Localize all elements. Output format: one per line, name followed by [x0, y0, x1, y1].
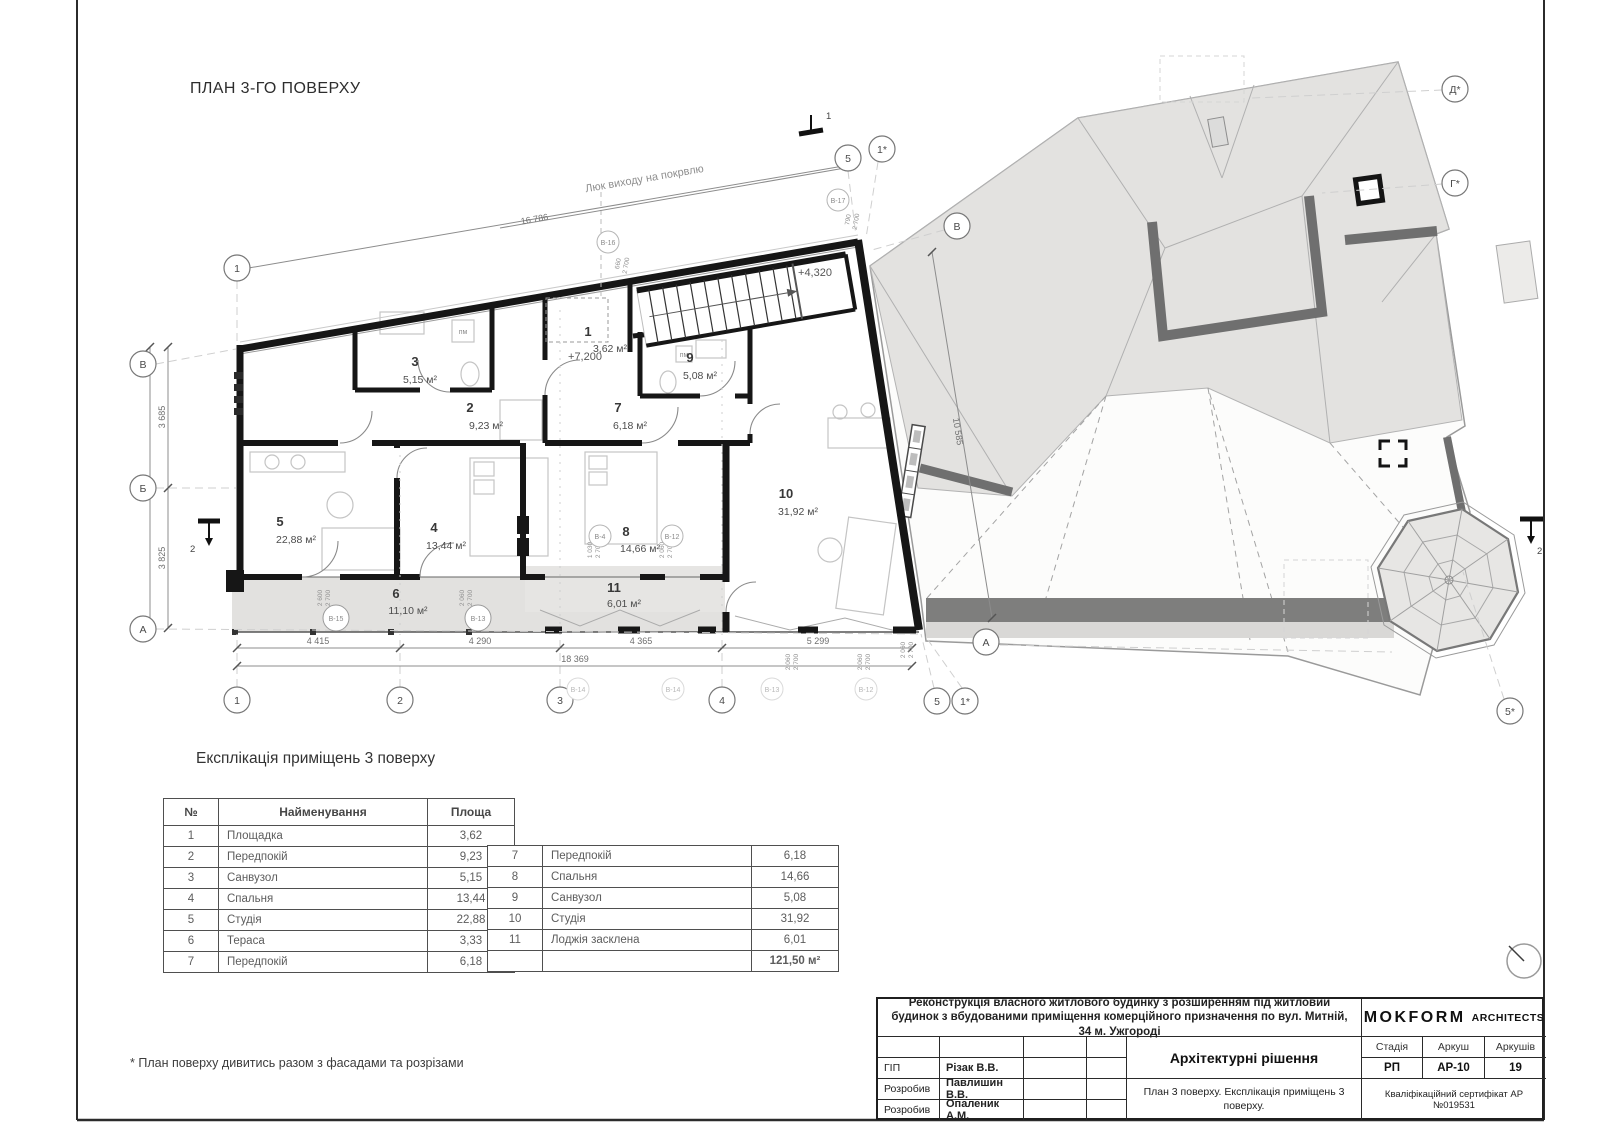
table-row: 7Передпокій6,18 [488, 846, 839, 867]
level-label: +7,200 [568, 351, 602, 363]
window-mark: В-16 [597, 231, 619, 253]
cell-number: 4 [164, 889, 219, 910]
window-mark-label: В-15 [329, 616, 344, 623]
axis-bubble: 1 [224, 255, 250, 281]
role-cell-empty [878, 1037, 940, 1058]
cell-total-area: 121,50 м² [752, 951, 839, 972]
dim-small: 2 060 [857, 653, 864, 670]
axis-bubble: 1 [224, 687, 250, 713]
room-area: 5,15 м² [403, 374, 438, 386]
table-row: 2Передпокій9,23 [164, 847, 515, 868]
sheets-label: Аркушів [1485, 1037, 1546, 1058]
cell-number: 11 [488, 930, 543, 951]
col-header-name: Найменування [219, 799, 428, 826]
window-mark: В-14 [662, 678, 684, 700]
room-number: 11 [607, 580, 621, 595]
north-indicator-icon [1507, 944, 1541, 978]
cell-area: 6,18 [752, 846, 839, 867]
axis-bubble: 5* [1497, 698, 1523, 724]
window-mark-label: В-13 [765, 687, 780, 694]
axis-bubble-label: 4 [719, 695, 725, 707]
cell-number: 7 [488, 846, 543, 867]
role-cell-empty [1087, 1079, 1127, 1100]
room-area: 22,88 м² [276, 534, 316, 546]
room-area: 9,23 м² [469, 420, 504, 432]
axis-bubble-label: 5 [845, 153, 851, 165]
window-mark-label: В-14 [666, 687, 681, 694]
roof-band-dark [926, 598, 1394, 622]
sheet-number: АР-10 [1423, 1058, 1485, 1079]
axis-bubble: 1* [952, 688, 978, 714]
shaft [517, 516, 529, 534]
role-cell-empty [1087, 1037, 1127, 1058]
dim-small: 2 700 [908, 641, 915, 658]
dim-label: 4 290 [469, 636, 492, 646]
drawing-sheet: пм пм [0, 0, 1600, 1131]
cell-name: Студія [543, 909, 752, 930]
title-block: Реконструкція власного житлового будинку… [876, 997, 1544, 1120]
window-mark-label: В-4 [595, 534, 606, 541]
wall-pier [226, 570, 244, 592]
table-row: 6Тераса3,33 [164, 931, 515, 952]
room-area: 14,66 м² [620, 543, 660, 555]
window-mark: В-12 [661, 525, 683, 547]
dim-small: 2 700 [622, 257, 632, 275]
window-mark: В-14 [567, 678, 589, 700]
table-row: 7Передпокій6,18 [164, 952, 515, 973]
role-label: Розробив [878, 1079, 940, 1100]
cell-number: 7 [164, 952, 219, 973]
axis-bubble-label: 5 [934, 696, 940, 708]
table-row: 8Спальня14,66 [488, 867, 839, 888]
cell-name: Студія [219, 910, 428, 931]
exploration-table-right: 7Передпокій6,18 8Спальня14,66 9Санвузол5… [487, 845, 839, 972]
doc-title: Архітектурні рішення [1127, 1037, 1362, 1079]
axis-bubble-label: 2 [397, 695, 403, 707]
axis-bubble-label: Д* [1449, 84, 1460, 96]
axis-bubble: А [973, 629, 999, 655]
table-row: 5Студія22,88 [164, 910, 515, 931]
cell-area: 5,08 [752, 888, 839, 909]
cell-name: Передпокій [543, 846, 752, 867]
window-mark: В-13 [465, 605, 491, 631]
role-name: Павлишин В.В. [940, 1079, 1024, 1100]
cell-name: Спальня [543, 867, 752, 888]
role-name: Різак В.В. [940, 1058, 1024, 1079]
certificate: Кваліфікаційний сертифікат АР №019531 [1362, 1079, 1546, 1120]
sheets-total: 19 [1485, 1058, 1546, 1079]
footnote: * План поверху дивитись разом з фасадами… [130, 1056, 464, 1070]
cell-empty [488, 951, 543, 972]
axis-bubble: В [944, 213, 970, 239]
axis-bubble-label: А [139, 624, 146, 636]
cell-area: 3,62 [428, 826, 515, 847]
page-title: ПЛАН 3-ГО ПОВЕРХУ [190, 80, 360, 98]
window-mark: В-12 [855, 678, 877, 700]
cell-number: 2 [164, 847, 219, 868]
brand-logo-suffix: ARCHITECTS [1472, 1012, 1545, 1024]
axis-bubble: Б [130, 475, 156, 501]
role-cell-empty [1087, 1058, 1127, 1079]
role-cell-empty [1024, 1058, 1087, 1079]
cell-area: 31,92 [752, 909, 839, 930]
room-area: 13,44 м² [426, 540, 466, 552]
axis-bubble-label: 1* [960, 696, 970, 708]
dim-label: 4 365 [630, 636, 653, 646]
window-mark-label: В-16 [601, 240, 616, 247]
dim-label: 5 299 [807, 636, 830, 646]
table-row: 4Спальня13,44 [164, 889, 515, 910]
room-area: 31,92 м² [778, 506, 818, 518]
room-number: 9 [686, 350, 693, 365]
axis-bubble-label: А [982, 637, 989, 649]
roof-hatch-note: Люк виходу на покрвлю [584, 163, 704, 195]
table-row: 1Площадка3,62 [164, 826, 515, 847]
section-label: 2 [1537, 546, 1542, 557]
role-name: Опаленик А.М. [940, 1100, 1024, 1120]
cell-number: 8 [488, 867, 543, 888]
cell-name: Площадка [219, 826, 428, 847]
axis-bubble: 4 [709, 687, 735, 713]
table-row: 3Санвузол5,15 [164, 868, 515, 889]
room-number: 10 [779, 486, 793, 501]
axis-bubble-label: 1* [877, 144, 887, 156]
cell-number: 1 [164, 826, 219, 847]
room-area: 6,18 м² [613, 420, 648, 432]
window-mark: В-15 [323, 605, 349, 631]
role-cell-empty [940, 1037, 1024, 1058]
apartment-plan: пм пм [226, 192, 919, 635]
room-area: 5,08 м² [683, 370, 718, 382]
room-area: 6,01 м² [607, 598, 642, 610]
window-mark: В-4 [589, 525, 611, 547]
window-mark-label: В-13 [471, 616, 486, 623]
shaft [517, 538, 529, 556]
exploration-heading: Експлікація приміщень 3 поверху [196, 750, 435, 768]
exploration-table-left: № Найменування Площа 1Площадка3,62 2Пере… [163, 798, 515, 973]
axis-bubble: 5 [924, 688, 950, 714]
dim-label: 4 415 [307, 636, 330, 646]
section-label: 2 [190, 544, 195, 555]
cell-name: Тераса [219, 931, 428, 952]
cell-name: Санвузол [219, 868, 428, 889]
room-number: 4 [430, 520, 438, 535]
section-label: 1 [826, 111, 831, 122]
washing-machine-label: пм [459, 329, 468, 336]
cell-name: Санвузол [543, 888, 752, 909]
axis-bubble-label: 1 [234, 695, 240, 707]
cell-empty [543, 951, 752, 972]
axis-bubble-label: 1 [234, 263, 240, 275]
roof-hatch-outline [546, 298, 608, 342]
axis-bubble-label: Б [140, 483, 147, 495]
room-number: 1 [584, 324, 591, 339]
role-cell-empty [1024, 1037, 1087, 1058]
col-header-area: Площа [428, 799, 515, 826]
stage-value: РП [1362, 1058, 1423, 1079]
axis-bubble: Г* [1442, 170, 1468, 196]
role-cell-empty [1024, 1079, 1087, 1100]
room-area: 11,10 м² [388, 605, 428, 617]
dim-small: 2 700 [793, 653, 800, 670]
axis-bubble-label: Г* [1450, 178, 1460, 190]
cell-name: Спальня [219, 889, 428, 910]
axis-bubble-label: В [953, 221, 960, 233]
axis-bubble: В [130, 351, 156, 377]
dim-small: 2 060 [785, 653, 792, 670]
dim-label: 18 369 [561, 654, 589, 664]
cell-number: 10 [488, 909, 543, 930]
sheet-label: Аркуш [1423, 1037, 1485, 1058]
project-description: Реконструкція власного житлового будинку… [878, 999, 1362, 1037]
dim-small: 2 060 [900, 641, 907, 658]
window-mark-label: В-12 [859, 687, 874, 694]
room-number: 8 [622, 524, 629, 539]
room-number: 3 [411, 354, 418, 369]
axis-bubble-label: В [139, 359, 146, 371]
stage-label: Стадія [1362, 1037, 1423, 1058]
axis-bubble: 1* [869, 136, 895, 162]
axis-bubble-label: 3 [557, 695, 563, 707]
dim-small: 2 700 [852, 213, 862, 231]
axis-bubble: 2 [387, 687, 413, 713]
window-mark: В-13 [761, 678, 783, 700]
level-label: +4,320 [798, 267, 832, 279]
dim-small: 2 700 [325, 589, 332, 606]
window-mark: В-17 [827, 189, 849, 211]
table-header-row: № Найменування Площа [164, 799, 515, 826]
room-number: 5 [276, 514, 283, 529]
axis-bubble: 5 [835, 145, 861, 171]
cell-name: Передпокій [219, 847, 428, 868]
window-mark-label: В-14 [571, 687, 586, 694]
table-total-row: 121,50 м² [488, 951, 839, 972]
window-mark-label: В-12 [665, 534, 680, 541]
dim-small: 2 060 [459, 589, 466, 606]
room-number: 2 [466, 400, 473, 415]
dim-label: 3 825 [157, 547, 167, 570]
cell-area: 6,01 [752, 930, 839, 951]
doc-subtitle: План 3 поверху. Експлікація приміщень 3 … [1127, 1079, 1362, 1120]
axis-bubble-label: 5* [1505, 706, 1515, 718]
brand: MOKFORM ARCHITECTS [1362, 999, 1546, 1037]
table-row: 10Студія31,92 [488, 909, 839, 930]
dim-small: 2 600 [317, 589, 324, 606]
axis-bubble: Д* [1442, 76, 1468, 102]
roof-plan [870, 56, 1538, 695]
brand-logo: MOKFORM [1364, 1009, 1466, 1027]
role-cell-empty [1087, 1100, 1127, 1120]
roof-dormer [1496, 241, 1538, 303]
cell-number: 5 [164, 910, 219, 931]
dim-small: 2 700 [865, 653, 872, 670]
cell-name: Лоджія засклена [543, 930, 752, 951]
col-header-number: № [164, 799, 219, 826]
dim-label: 16 786 [520, 212, 549, 227]
dim-small: 2 700 [467, 589, 474, 606]
room-number: 6 [392, 586, 399, 601]
axis-bubble: А [130, 616, 156, 642]
dim-label: 3 685 [157, 406, 167, 429]
cell-number: 6 [164, 931, 219, 952]
role-cell-empty [1024, 1100, 1087, 1120]
table-row: 11Лоджія засклена6,01 [488, 930, 839, 951]
role-label: Розробив [878, 1100, 940, 1120]
cell-number: 3 [164, 868, 219, 889]
role-label: ГІП [878, 1058, 940, 1079]
table-row: 9Санвузол5,08 [488, 888, 839, 909]
window-mark-label: В-17 [831, 198, 846, 205]
cell-name: Передпокій [219, 952, 428, 973]
room-number: 7 [614, 400, 621, 415]
cell-number: 9 [488, 888, 543, 909]
cell-area: 14,66 [752, 867, 839, 888]
